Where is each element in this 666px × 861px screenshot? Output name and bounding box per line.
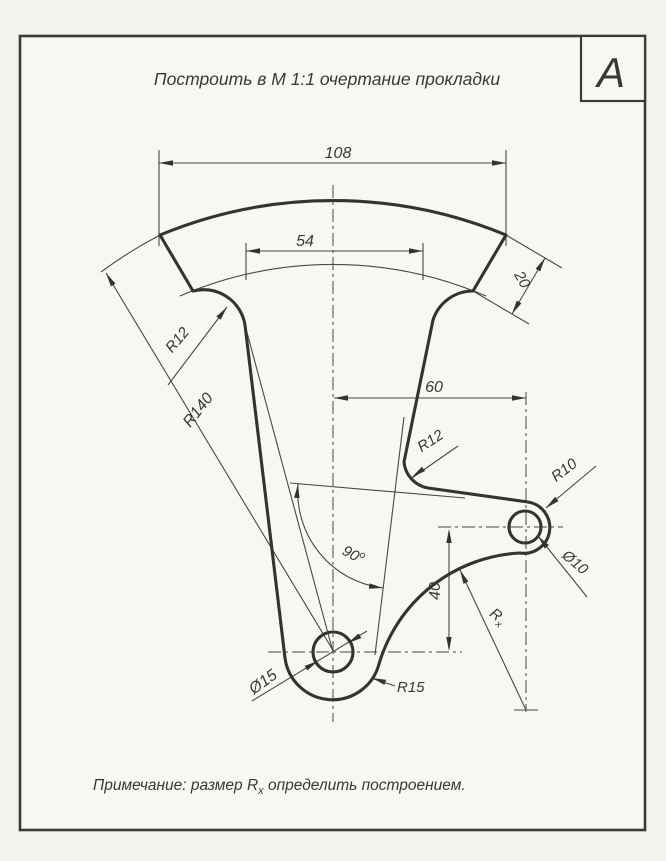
task-title: Построить в М 1:1 очертание прокладки — [154, 69, 500, 89]
dim-40-label: 40 — [427, 582, 444, 600]
dim-60-label: 60 — [425, 379, 443, 396]
drawing-canvas: А Построить в М 1:1 очертание прокладки — [0, 0, 666, 861]
scanned-task-sheet: А Построить в М 1:1 очертание прокладки — [0, 0, 666, 861]
dim-r15-label: R15 — [397, 679, 425, 696]
variant-marker-letter: А — [594, 49, 625, 96]
dim-108-label: 108 — [325, 145, 352, 162]
dim-54-label: 54 — [296, 233, 314, 250]
